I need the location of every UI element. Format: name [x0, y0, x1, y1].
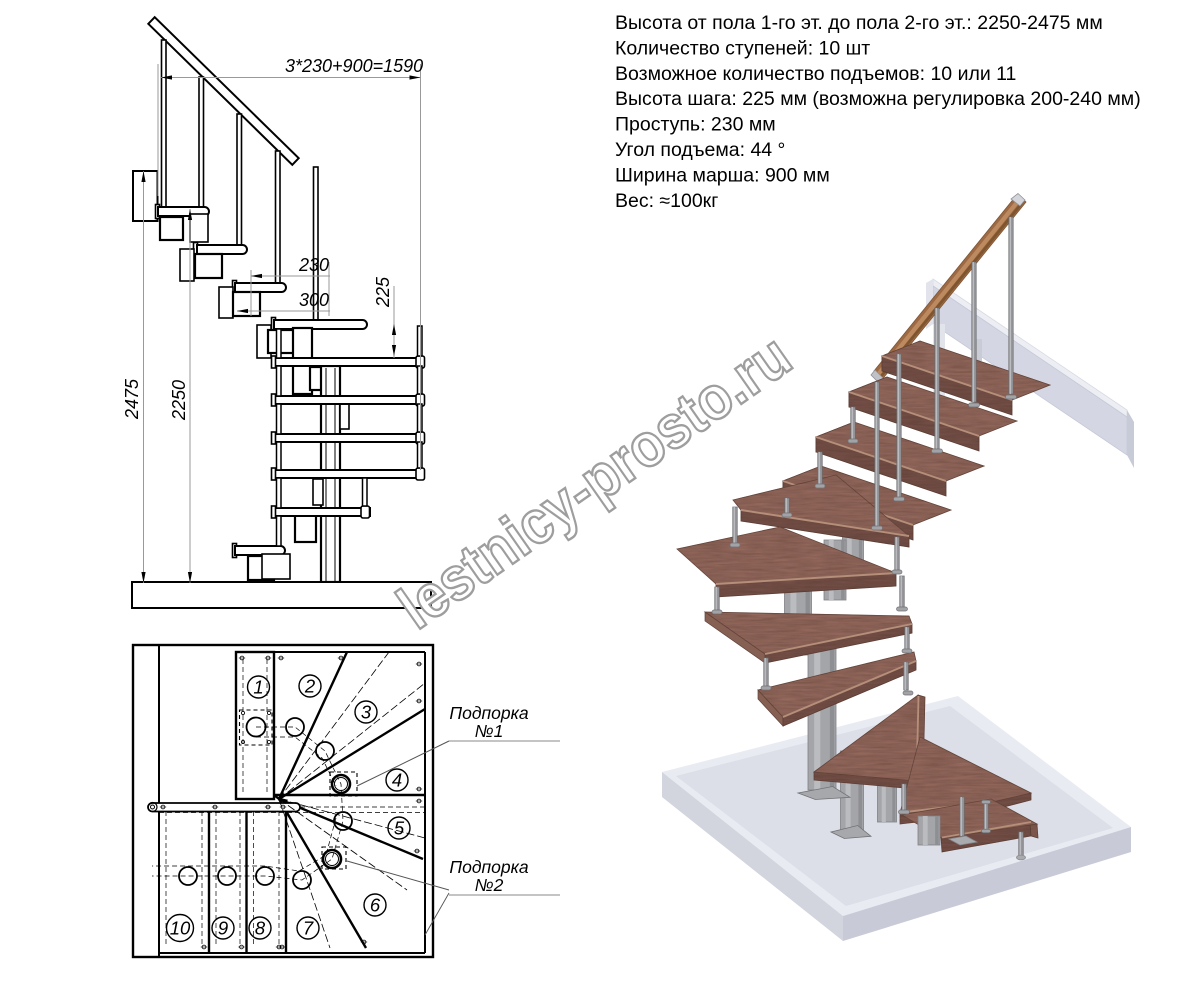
- svg-text:2250: 2250: [169, 380, 189, 421]
- svg-text:8: 8: [255, 918, 266, 939]
- svg-text:Количество ступеней: 10 шт: Количество ступеней: 10 шт: [615, 37, 870, 59]
- svg-text:Проступь: 230 мм: Проступь: 230 мм: [615, 114, 776, 136]
- svg-text:2: 2: [304, 676, 316, 697]
- svg-text:3*230+900=1590: 3*230+900=1590: [285, 56, 423, 76]
- svg-text:5: 5: [394, 818, 405, 839]
- svg-text:Подпорка: Подпорка: [449, 703, 528, 723]
- svg-text:230: 230: [298, 255, 329, 275]
- svg-text:4: 4: [392, 770, 402, 791]
- svg-text:Вес: ≈100кг: Вес: ≈100кг: [615, 190, 718, 212]
- svg-text:№2: №2: [475, 875, 504, 895]
- svg-text:Ширина марша: 900 мм: Ширина марша: 900 мм: [615, 164, 830, 186]
- svg-text:3: 3: [361, 702, 372, 723]
- svg-text:2475: 2475: [122, 378, 142, 420]
- svg-text:225: 225: [373, 276, 393, 308]
- svg-text:Угол подъема: 44 °: Угол подъема: 44 °: [615, 139, 785, 161]
- svg-text:9: 9: [218, 918, 228, 939]
- svg-text:№1: №1: [475, 721, 504, 741]
- svg-text:6: 6: [370, 895, 381, 916]
- svg-text:Возможное количество подъемов:: Возможное количество подъемов: 10 или 11: [615, 63, 1016, 85]
- svg-text:10: 10: [170, 918, 191, 939]
- svg-text:Высота от пола 1-го эт. до пол: Высота от пола 1-го эт. до пола 2-го эт.…: [615, 12, 1103, 34]
- svg-text:Подпорка: Подпорка: [449, 857, 528, 877]
- svg-text:300: 300: [299, 290, 329, 310]
- svg-text:Высота шага: 225 мм (возможна: Высота шага: 225 мм (возможна регулировк…: [615, 88, 1141, 110]
- svg-text:1: 1: [253, 677, 263, 698]
- svg-text:7: 7: [303, 918, 314, 939]
